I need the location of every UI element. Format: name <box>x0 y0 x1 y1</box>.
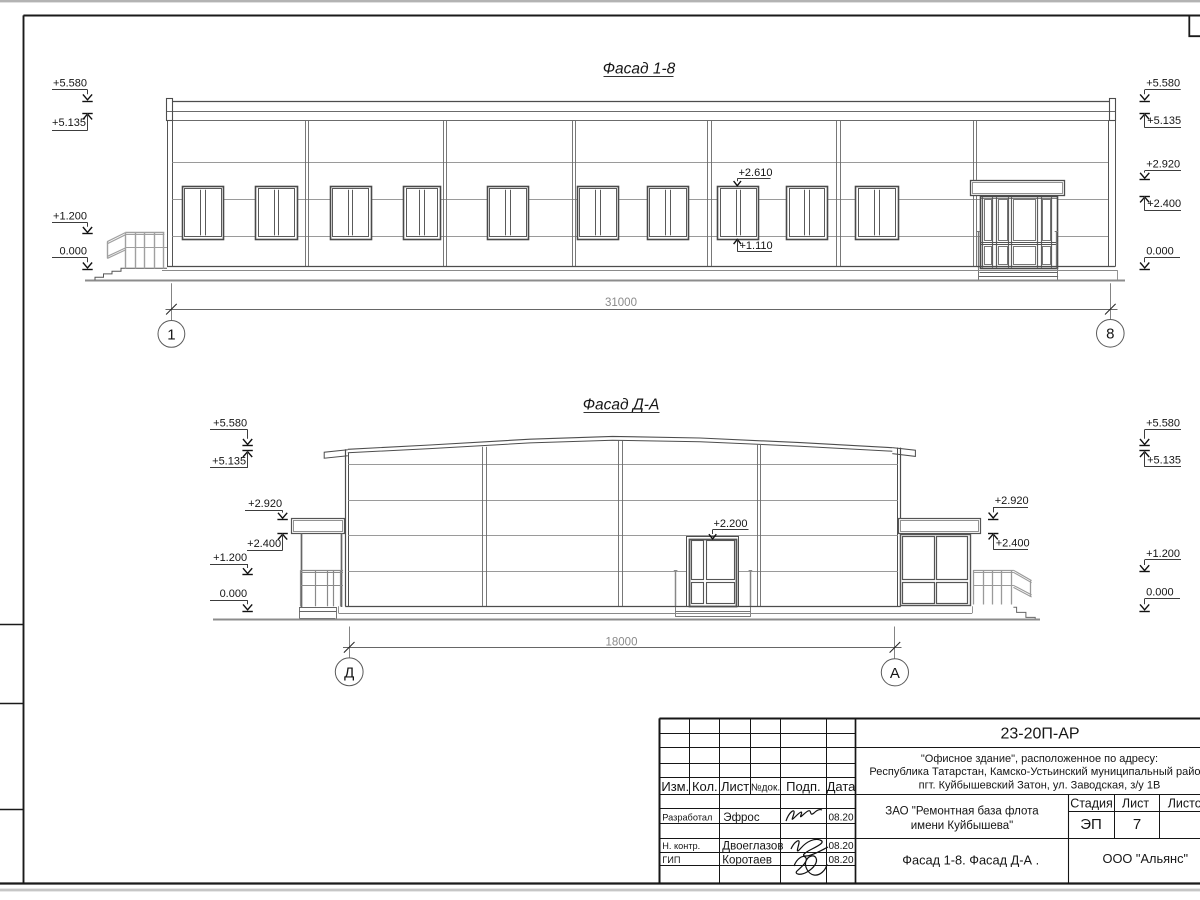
svg-text:+2.920: +2.920 <box>1146 158 1180 170</box>
svg-text:+2.400: +2.400 <box>996 538 1030 550</box>
svg-text:"Офисное здание", расположенно: "Офисное здание", расположенное по адрес… <box>921 753 1158 765</box>
svg-text:Подп.: Подп. <box>786 779 821 794</box>
svg-text:18000: 18000 <box>606 637 638 649</box>
svg-text:+1.200: +1.200 <box>1146 548 1180 560</box>
svg-text:имени Куйбышева": имени Куйбышева" <box>911 820 1014 832</box>
svg-text:8: 8 <box>1106 326 1114 343</box>
svg-text:0.000: 0.000 <box>59 246 87 258</box>
svg-text:Стадия: Стадия <box>1070 797 1113 811</box>
svg-text:1: 1 <box>167 326 175 343</box>
svg-text:23-20П-АР: 23-20П-АР <box>1000 726 1079 743</box>
svg-text:ООО "Альянс": ООО "Альянс" <box>1103 851 1189 866</box>
svg-text:+5.135: +5.135 <box>1147 115 1181 127</box>
svg-text:+5.580: +5.580 <box>213 417 247 429</box>
svg-text:+2.920: +2.920 <box>248 498 282 510</box>
svg-text:0.000: 0.000 <box>1146 587 1174 599</box>
svg-text:Кол.: Кол. <box>692 779 718 794</box>
svg-text:31000: 31000 <box>605 297 637 309</box>
svg-text:+2.200: +2.200 <box>714 518 748 530</box>
svg-text:ЗАО "Ремонтная база флота: ЗАО "Ремонтная база флота <box>885 806 1039 818</box>
svg-text:7: 7 <box>1133 816 1141 833</box>
svg-text:Двоеглазов: Двоеглазов <box>722 840 783 852</box>
svg-text:08.20: 08.20 <box>828 855 853 866</box>
svg-text:+5.135: +5.135 <box>1147 455 1181 467</box>
svg-text:+5.135: +5.135 <box>52 117 86 129</box>
svg-text:Фасад Д-А: Фасад Д-А <box>583 396 660 413</box>
svg-text:0.000: 0.000 <box>1146 246 1174 258</box>
svg-text:Листов: Листов <box>1168 797 1200 811</box>
svg-text:0.000: 0.000 <box>220 588 248 600</box>
svg-text:ГИП: ГИП <box>662 855 680 865</box>
svg-text:+2.400: +2.400 <box>1147 198 1181 210</box>
svg-text:Республика Татарстан, Камско-У: Республика Татарстан, Камско-Устьинский … <box>869 766 1200 778</box>
svg-text:ЭП: ЭП <box>1080 816 1102 833</box>
svg-text:08.20: 08.20 <box>828 841 853 852</box>
svg-text:Д: Д <box>344 665 354 682</box>
svg-text:+5.580: +5.580 <box>1146 78 1180 90</box>
svg-text:Н. контр.: Н. контр. <box>662 841 700 851</box>
svg-text:+5.135: +5.135 <box>212 455 246 467</box>
svg-text:А: А <box>890 665 900 682</box>
svg-text:Фасад 1-8. Фасад Д-А .: Фасад 1-8. Фасад Д-А . <box>902 853 1039 868</box>
svg-text:Лист: Лист <box>1122 797 1149 811</box>
svg-text:+5.580: +5.580 <box>1146 417 1180 429</box>
svg-text:Коротаев: Коротаев <box>722 855 772 867</box>
svg-text:+2.610: +2.610 <box>739 167 773 179</box>
svg-text:08.20: 08.20 <box>828 812 853 823</box>
svg-text:+1.200: +1.200 <box>213 552 247 564</box>
svg-text:Разработал: Разработал <box>662 812 712 822</box>
svg-text:Эфрос: Эфрос <box>723 812 760 824</box>
svg-text:+1.200: +1.200 <box>53 210 87 222</box>
svg-text:+5.580: +5.580 <box>53 78 87 90</box>
svg-text:+2.400: +2.400 <box>247 538 281 550</box>
svg-text:Изм.: Изм. <box>661 779 689 794</box>
svg-text:+1.110: +1.110 <box>740 240 773 252</box>
svg-text:пгт. Куйбышевский Затон, ул. З: пгт. Куйбышевский Затон, ул. Заводская, … <box>919 779 1161 791</box>
svg-text:Дата: Дата <box>827 779 857 794</box>
svg-text:Фасад 1-8: Фасад 1-8 <box>603 61 676 78</box>
svg-text:№док.: №док. <box>751 783 780 794</box>
svg-text:Лист: Лист <box>721 779 749 794</box>
svg-text:+2.920: +2.920 <box>995 495 1029 507</box>
